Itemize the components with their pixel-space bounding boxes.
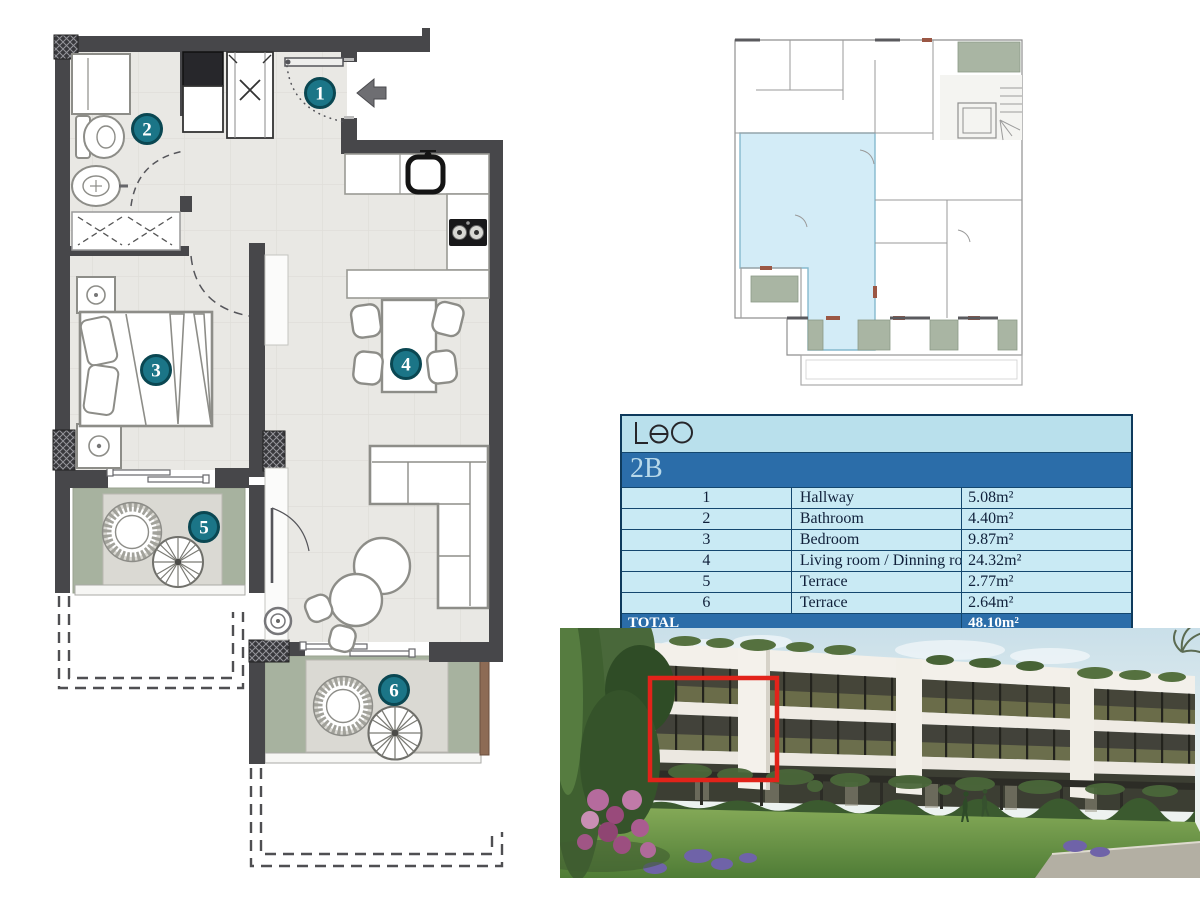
shower	[72, 54, 130, 114]
table-row: 4 Living room / Dinning room / Kitchen 2…	[621, 551, 1132, 572]
room-badge-living: 4	[392, 350, 421, 379]
leo-logo	[630, 419, 720, 447]
floorplan-sheet: { "brand": { "logo_text": "Leo" }, "unit…	[0, 0, 1200, 900]
table-row: 6 Terrace 2.64m²	[621, 593, 1132, 614]
room-badge-terrace-5: 5	[190, 513, 219, 542]
svg-text:4: 4	[401, 355, 411, 376]
boiler	[265, 608, 291, 634]
svg-text:2: 2	[142, 120, 152, 141]
table-row: 5 Terrace 2.77m²	[621, 572, 1132, 593]
kitchen-island	[347, 270, 489, 298]
brand-row: Leo	[621, 415, 1132, 453]
pillow	[83, 364, 119, 416]
unit-name-row: 2B	[621, 453, 1132, 488]
building-render-photo	[560, 628, 1200, 878]
kitchen-sink	[408, 157, 443, 192]
room-badge-terrace-6: 6	[380, 676, 409, 705]
svg-text:6: 6	[389, 681, 399, 702]
faucet	[425, 152, 432, 159]
main-floorplan: 1 2 3 4 5 6	[48, 28, 512, 880]
entrance-arrow-icon	[357, 79, 386, 107]
svg-text:3: 3	[151, 361, 161, 382]
svg-text:5: 5	[199, 518, 209, 539]
floor-locator-plan	[725, 28, 1035, 394]
unit-spec-table: Leo 2B 1 Hallway 5.08m² 2 Bathroom 4.40m…	[620, 414, 1133, 634]
table-row: 3 Bedroom 9.87m²	[621, 530, 1132, 551]
table-row: 2 Bathroom 4.40m²	[621, 509, 1132, 530]
unit-name: 2B	[621, 453, 1132, 488]
room-badge-bedroom: 3	[142, 356, 171, 385]
room-badge-bathroom: 2	[133, 115, 162, 144]
table-row: 1 Hallway 5.08m²	[621, 488, 1132, 509]
wardrobe	[72, 212, 180, 250]
brand-name: Leo	[720, 419, 721, 420]
room-badge-hallway: 1	[306, 79, 335, 108]
svg-text:1: 1	[315, 84, 325, 105]
